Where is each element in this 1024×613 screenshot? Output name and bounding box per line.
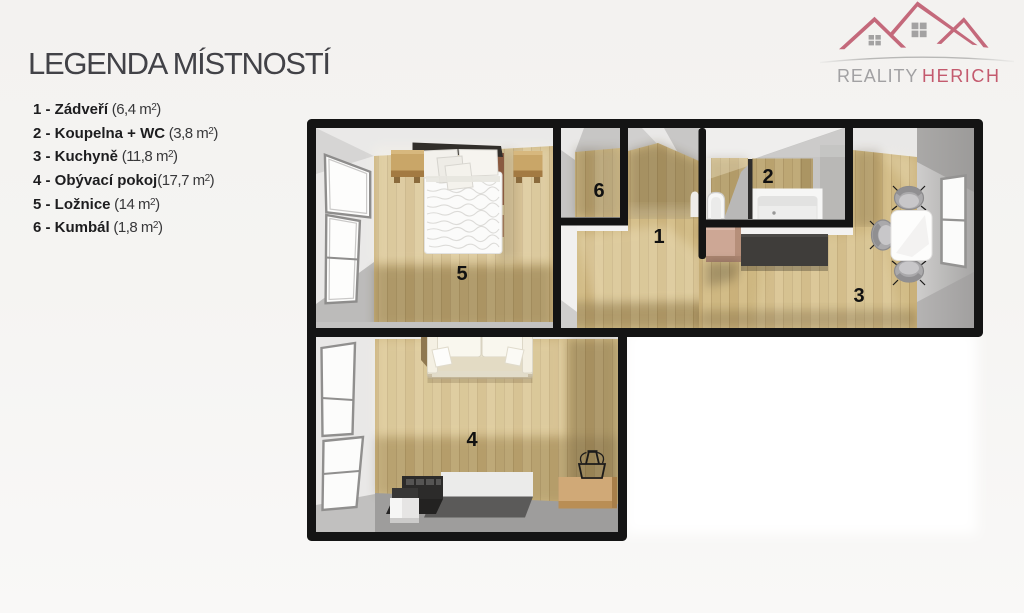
svg-text:5: 5 <box>456 263 467 285</box>
svg-text:1: 1 <box>653 226 664 248</box>
svg-text:6: 6 <box>593 180 604 202</box>
svg-text:4: 4 <box>466 429 478 451</box>
svg-text:3: 3 <box>853 285 864 307</box>
svg-text:2: 2 <box>762 166 773 188</box>
